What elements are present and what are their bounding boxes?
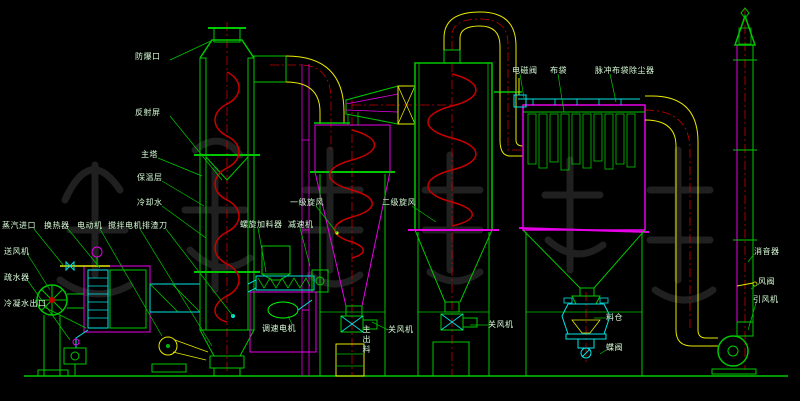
leader-filter-bag <box>558 74 564 112</box>
collection-drum-1 <box>336 344 364 376</box>
leader-agitator-motor <box>140 229 212 346</box>
collection-drum-2 <box>433 342 469 376</box>
leader-condensate-outlet <box>44 307 86 328</box>
variable-speed-motor <box>250 292 316 352</box>
cad-drawing-canvas: 防爆口反射屏主塔保温层冷却水蒸汽进口换热器电动机搅拌电机排渣刀送风机疏水器冷凝水… <box>0 0 800 401</box>
belt-motor <box>152 337 208 372</box>
process-diagram-art <box>0 0 800 401</box>
leader-pulse-bag-dust-collector <box>610 74 616 102</box>
leader-explosion-vent <box>170 40 213 60</box>
bag-dust-collector <box>514 78 649 376</box>
leader-induced-draft-fan <box>748 303 756 330</box>
leader-butterfly-valve <box>600 350 606 354</box>
leader-solenoid-valve <box>520 74 524 98</box>
supply-fan <box>37 285 84 376</box>
rotary-airlock-2 <box>441 314 477 330</box>
leader-main-tower <box>158 158 202 176</box>
leader-electric-motor <box>100 229 162 336</box>
watermark <box>60 141 713 300</box>
support-columns <box>302 64 309 376</box>
leader-supply-fan <box>28 255 50 290</box>
leader-reflection-screen <box>170 116 222 180</box>
leader-steam-inlet <box>34 229 64 266</box>
induced-draft-fan <box>712 322 756 374</box>
rotary-airlock-1 <box>341 316 377 332</box>
leader-air-valve <box>751 284 758 289</box>
leader-insulation-layer <box>162 181 204 206</box>
overhead-pipe <box>444 12 523 156</box>
hot-air-duct <box>150 284 200 312</box>
leader-reducer <box>300 228 310 266</box>
screw-feeder <box>248 246 328 292</box>
